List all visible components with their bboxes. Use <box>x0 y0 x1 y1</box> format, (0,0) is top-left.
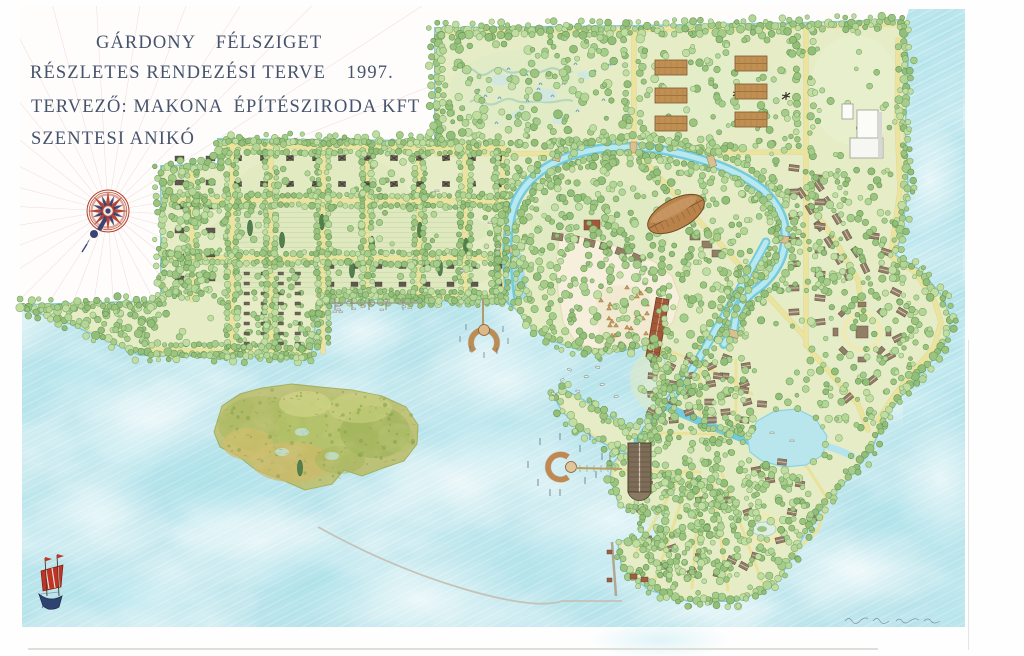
svg-text:SZENTESI ANIKÓ: SZENTESI ANIKÓ <box>31 127 195 149</box>
svg-text:RÉSZLETES RENDEZÉSI TERVE 199: RÉSZLETES RENDEZÉSI TERVE 1997. <box>30 61 394 83</box>
svg-text:TERVEZŐ: MAKONA ÉPÍTÉSZIRODA K: TERVEZŐ: MAKONA ÉPÍTÉSZIRODA KFT <box>31 95 420 117</box>
svg-text:GÁRDONY FÉLSZIGET: GÁRDONY FÉLSZIGET <box>96 31 322 53</box>
